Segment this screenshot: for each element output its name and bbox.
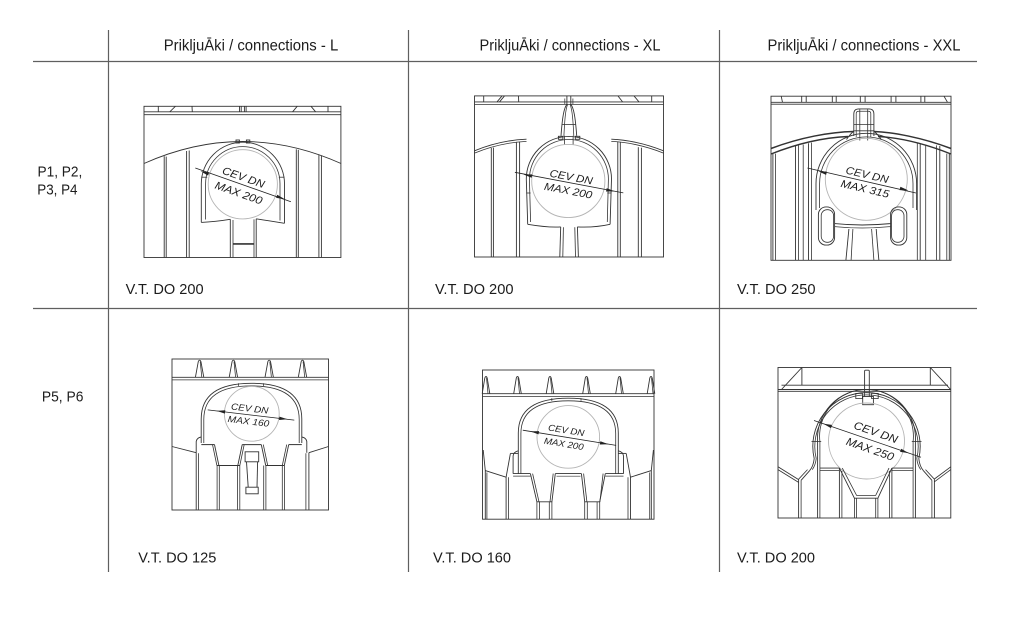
svg-text:P1, P2,: P1, P2, bbox=[38, 164, 83, 181]
svg-text:V.T. DO 250: V.T. DO 250 bbox=[737, 281, 816, 298]
svg-text:PrikljuĀki / connections - XL: PrikljuĀki / connections - XL bbox=[480, 38, 661, 55]
svg-text:V.T. DO 200: V.T. DO 200 bbox=[126, 281, 204, 298]
svg-text:PrikljuĀki / connections - L: PrikljuĀki / connections - L bbox=[164, 38, 339, 55]
svg-text:PrikljuĀki / connections - XXL: PrikljuĀki / connections - XXL bbox=[768, 38, 961, 55]
svg-text:V.T. DO 125: V.T. DO 125 bbox=[138, 550, 216, 567]
svg-text:V.T. DO 160: V.T. DO 160 bbox=[433, 550, 511, 567]
svg-text:P5, P6: P5, P6 bbox=[42, 389, 84, 406]
svg-text:V.T. DO 200: V.T. DO 200 bbox=[435, 281, 514, 298]
svg-text:P3, P4: P3, P4 bbox=[37, 182, 77, 199]
svg-text:V.T. DO 200: V.T. DO 200 bbox=[737, 550, 815, 567]
